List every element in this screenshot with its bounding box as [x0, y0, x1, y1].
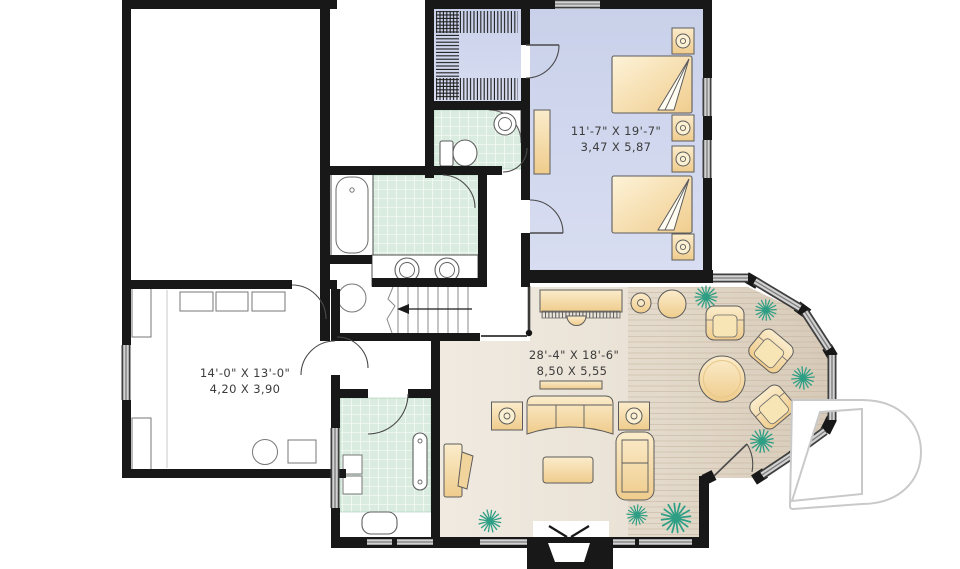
- fireplace: [527, 521, 613, 569]
- cabinet: [252, 292, 285, 311]
- toilet-bowl: [453, 140, 477, 166]
- water-heater: [253, 440, 278, 465]
- bed: [612, 56, 692, 113]
- water-tank: [338, 284, 366, 312]
- floor-plan-page: 14'-0" X 13'-0" 4,20 X 3,90 11'-7" X 19'…: [0, 0, 960, 569]
- nightstand: [672, 28, 694, 54]
- sofa-table: [540, 381, 602, 389]
- newel-post: [526, 330, 532, 336]
- drafting-easel: [444, 444, 462, 497]
- loveseat: [616, 432, 654, 500]
- bedroom-dims-imperial: 11'-7" X 19'-7": [571, 124, 661, 138]
- shelf-unit: [132, 288, 151, 337]
- nightstand: [672, 115, 694, 141]
- family-room-dims-imperial: 28'-4" X 18'-6": [529, 348, 619, 362]
- nightstand: [672, 234, 694, 260]
- firebox: [548, 543, 590, 562]
- bed: [612, 176, 692, 233]
- cabinet: [216, 292, 248, 311]
- dresser: [534, 110, 550, 174]
- clothes-rack: [436, 11, 459, 99]
- furnace: [288, 440, 316, 463]
- laundry-dims-imperial: 14'-0" X 13'-0": [200, 366, 290, 380]
- hearth-notch: [533, 521, 609, 538]
- desk: [540, 290, 622, 312]
- armchair: [706, 306, 744, 340]
- sink: [494, 113, 516, 135]
- main-bath-floor: [373, 175, 478, 255]
- round-table: [658, 290, 686, 318]
- family-room-dims-metric: 8,50 X 5,55: [537, 364, 608, 378]
- counter: [343, 476, 362, 494]
- plant-icon: [695, 286, 717, 308]
- shelf-unit: [132, 418, 151, 472]
- cabinet: [180, 292, 213, 311]
- end-table: [492, 402, 523, 430]
- floor-plan-drawing: 14'-0" X 13'-0" 4,20 X 3,90 11'-7" X 19'…: [0, 0, 960, 569]
- ironing-board: [413, 433, 427, 490]
- laundry-dims-metric: 4,20 X 3,90: [210, 382, 281, 396]
- end-table: [619, 402, 650, 430]
- coffee-table: [543, 457, 593, 483]
- wall-post: [704, 475, 714, 480]
- bay-round-table: [699, 356, 745, 402]
- nightstand: [672, 146, 694, 172]
- wall-post: [825, 418, 832, 432]
- toilet: [362, 512, 397, 534]
- toilet-tank: [440, 141, 453, 166]
- bedroom-dims-metric: 3,47 X 5,87: [581, 140, 652, 154]
